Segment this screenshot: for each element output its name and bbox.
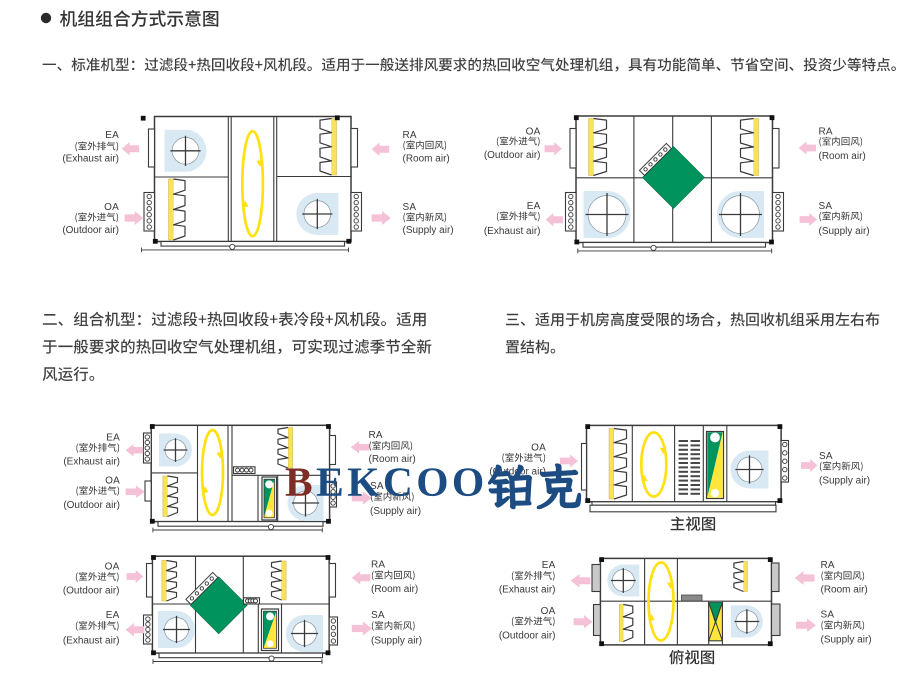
svg-text:OA: OA <box>105 562 120 573</box>
svg-text:(Supply air): (Supply air) <box>819 226 870 237</box>
svg-text:SA: SA <box>819 201 833 212</box>
svg-text:(Room air): (Room air) <box>371 584 418 595</box>
svg-text:(Supply air): (Supply air) <box>370 506 421 517</box>
svg-text:(Outdoor air): (Outdoor air) <box>63 586 120 597</box>
svg-text:(Exhaust air): (Exhaust air) <box>499 585 556 596</box>
svg-text:(Outdoor air): (Outdoor air) <box>62 225 119 236</box>
svg-text:SA: SA <box>821 610 835 621</box>
svg-text:EA: EA <box>105 130 119 141</box>
svg-text:OA: OA <box>104 202 119 213</box>
svg-text:EA: EA <box>527 201 541 212</box>
svg-text:(Exhaust air): (Exhaust air) <box>484 226 541 237</box>
svg-text:(Outdoor air): (Outdoor air) <box>484 150 541 161</box>
svg-text:(Room air): (Room air) <box>819 151 866 162</box>
svg-text:(Room air): (Room air) <box>369 454 416 465</box>
svg-text:(Supply air): (Supply air) <box>403 225 454 236</box>
svg-text:(Room air): (Room air) <box>403 154 450 165</box>
svg-text:RA: RA <box>369 430 383 441</box>
svg-text:OA: OA <box>541 606 556 617</box>
svg-text:(Exhaust air): (Exhaust air) <box>63 457 120 468</box>
svg-text:OA: OA <box>531 443 546 454</box>
svg-text:SA: SA <box>371 610 385 621</box>
svg-text:(Supply air): (Supply air) <box>371 636 422 647</box>
svg-text:RA: RA <box>371 560 385 571</box>
svg-text:SA: SA <box>403 202 417 213</box>
svg-text:RA: RA <box>819 127 833 138</box>
svg-text:OA: OA <box>105 476 120 487</box>
svg-text:(Supply air): (Supply air) <box>819 476 870 487</box>
svg-text:(Supply air): (Supply air) <box>821 635 872 646</box>
svg-text:(Outdoor air): (Outdoor air) <box>499 631 556 642</box>
svg-text:(Exhaust air): (Exhaust air) <box>63 636 120 647</box>
svg-text:(Room air): (Room air) <box>821 585 868 596</box>
svg-text:RA: RA <box>403 130 417 141</box>
svg-text:EA: EA <box>106 610 120 621</box>
svg-text:EA: EA <box>542 560 556 571</box>
svg-text:EA: EA <box>106 433 120 444</box>
svg-text:SA: SA <box>819 451 833 462</box>
svg-text:(Outdoor air): (Outdoor air) <box>63 500 120 511</box>
svg-text:(Exhaust air): (Exhaust air) <box>62 154 119 165</box>
svg-text:RA: RA <box>821 560 835 571</box>
svg-text:OA: OA <box>526 127 541 138</box>
